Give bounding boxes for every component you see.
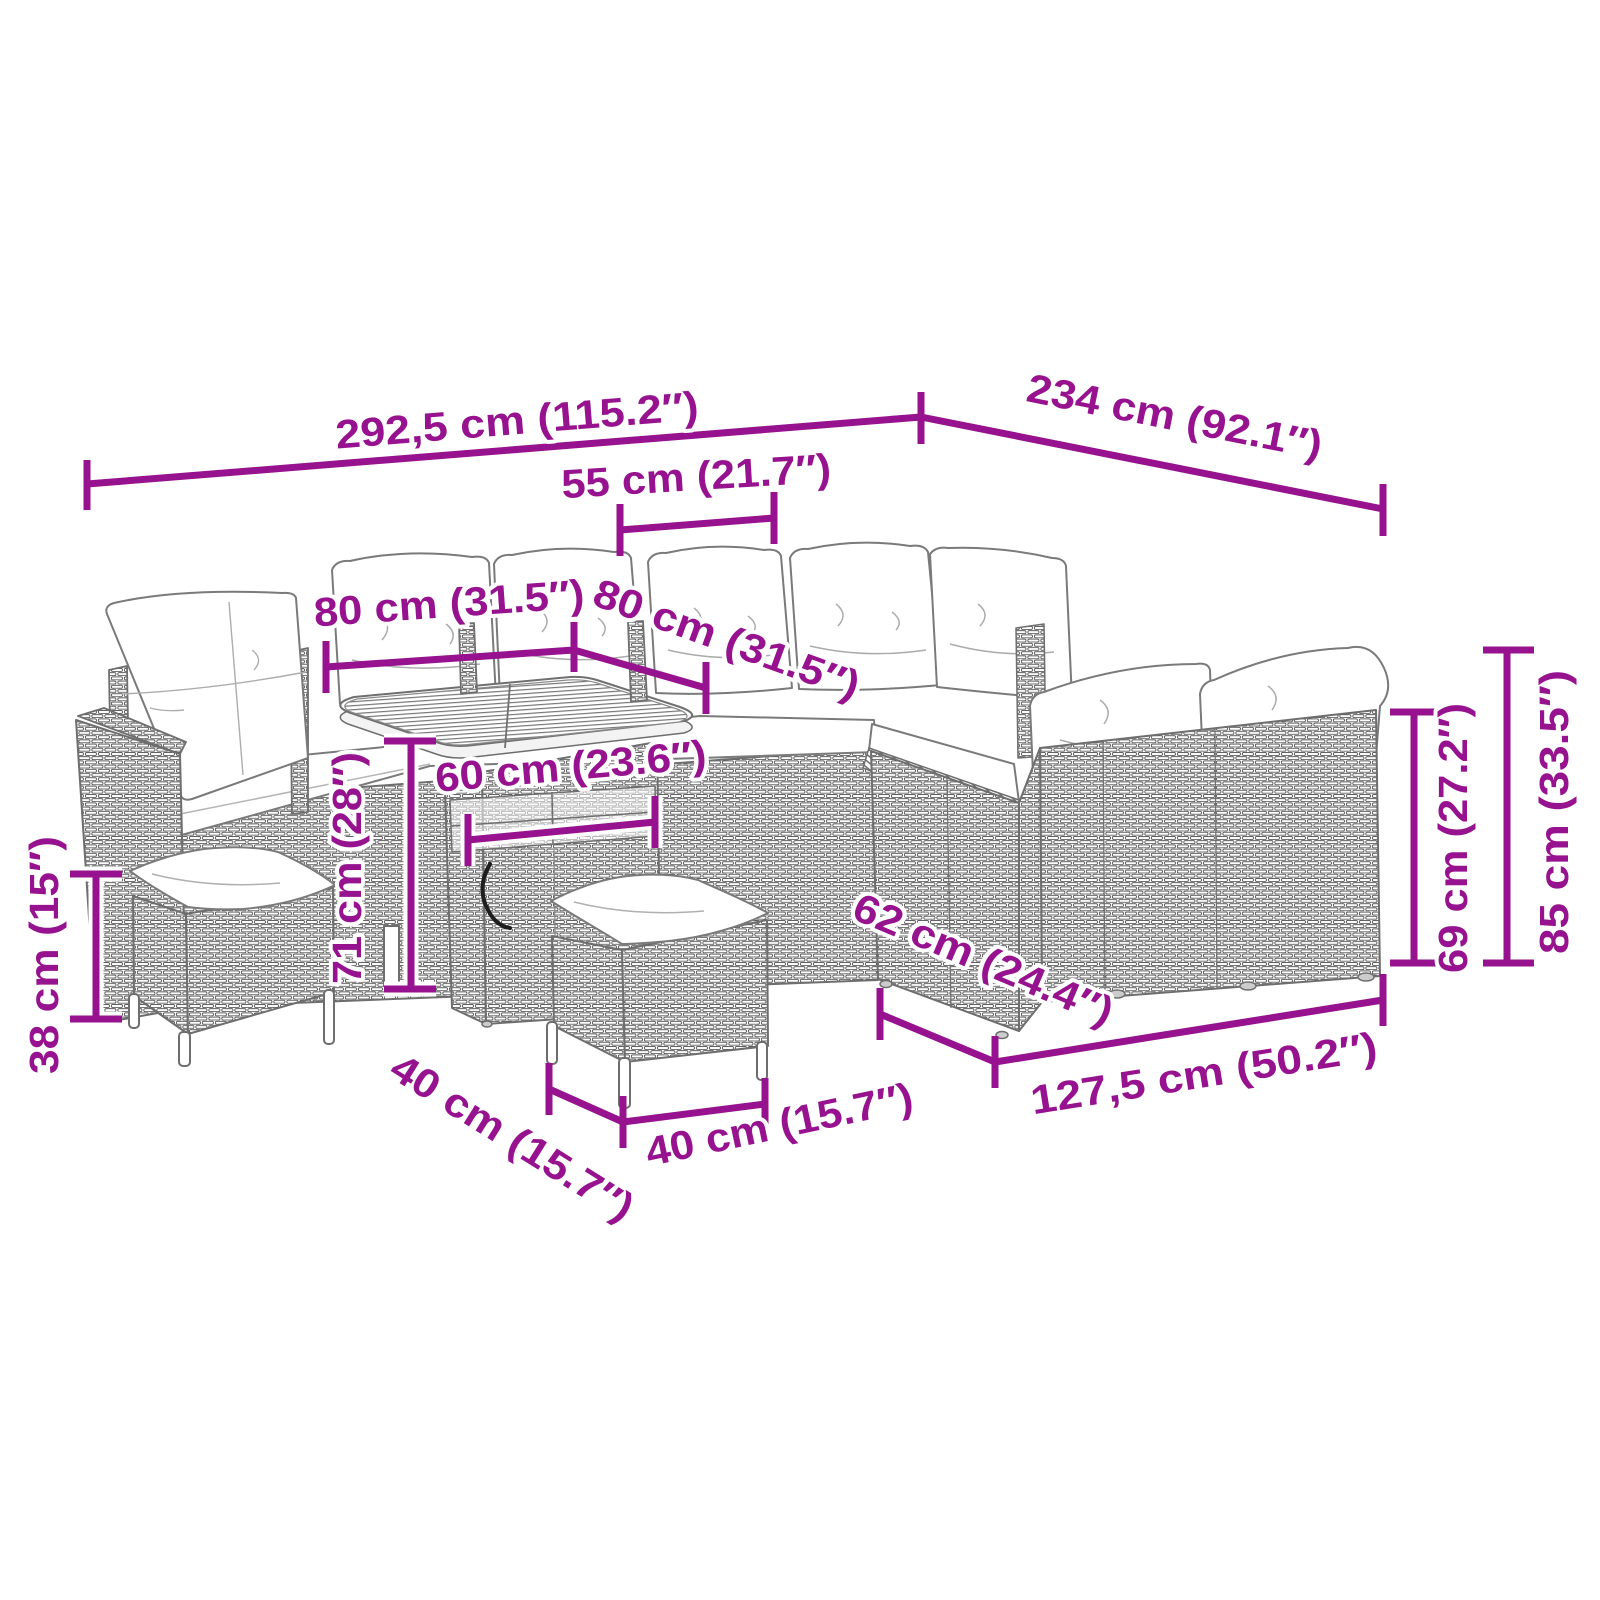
svg-text:85 cm (33.5″): 85 cm (33.5″)	[1531, 670, 1577, 954]
svg-text:69 cm (27.2″): 69 cm (27.2″)	[1430, 703, 1476, 973]
svg-text:38 cm (15″): 38 cm (15″)	[21, 836, 67, 1074]
svg-text:71 cm (28″): 71 cm (28″)	[324, 752, 370, 984]
